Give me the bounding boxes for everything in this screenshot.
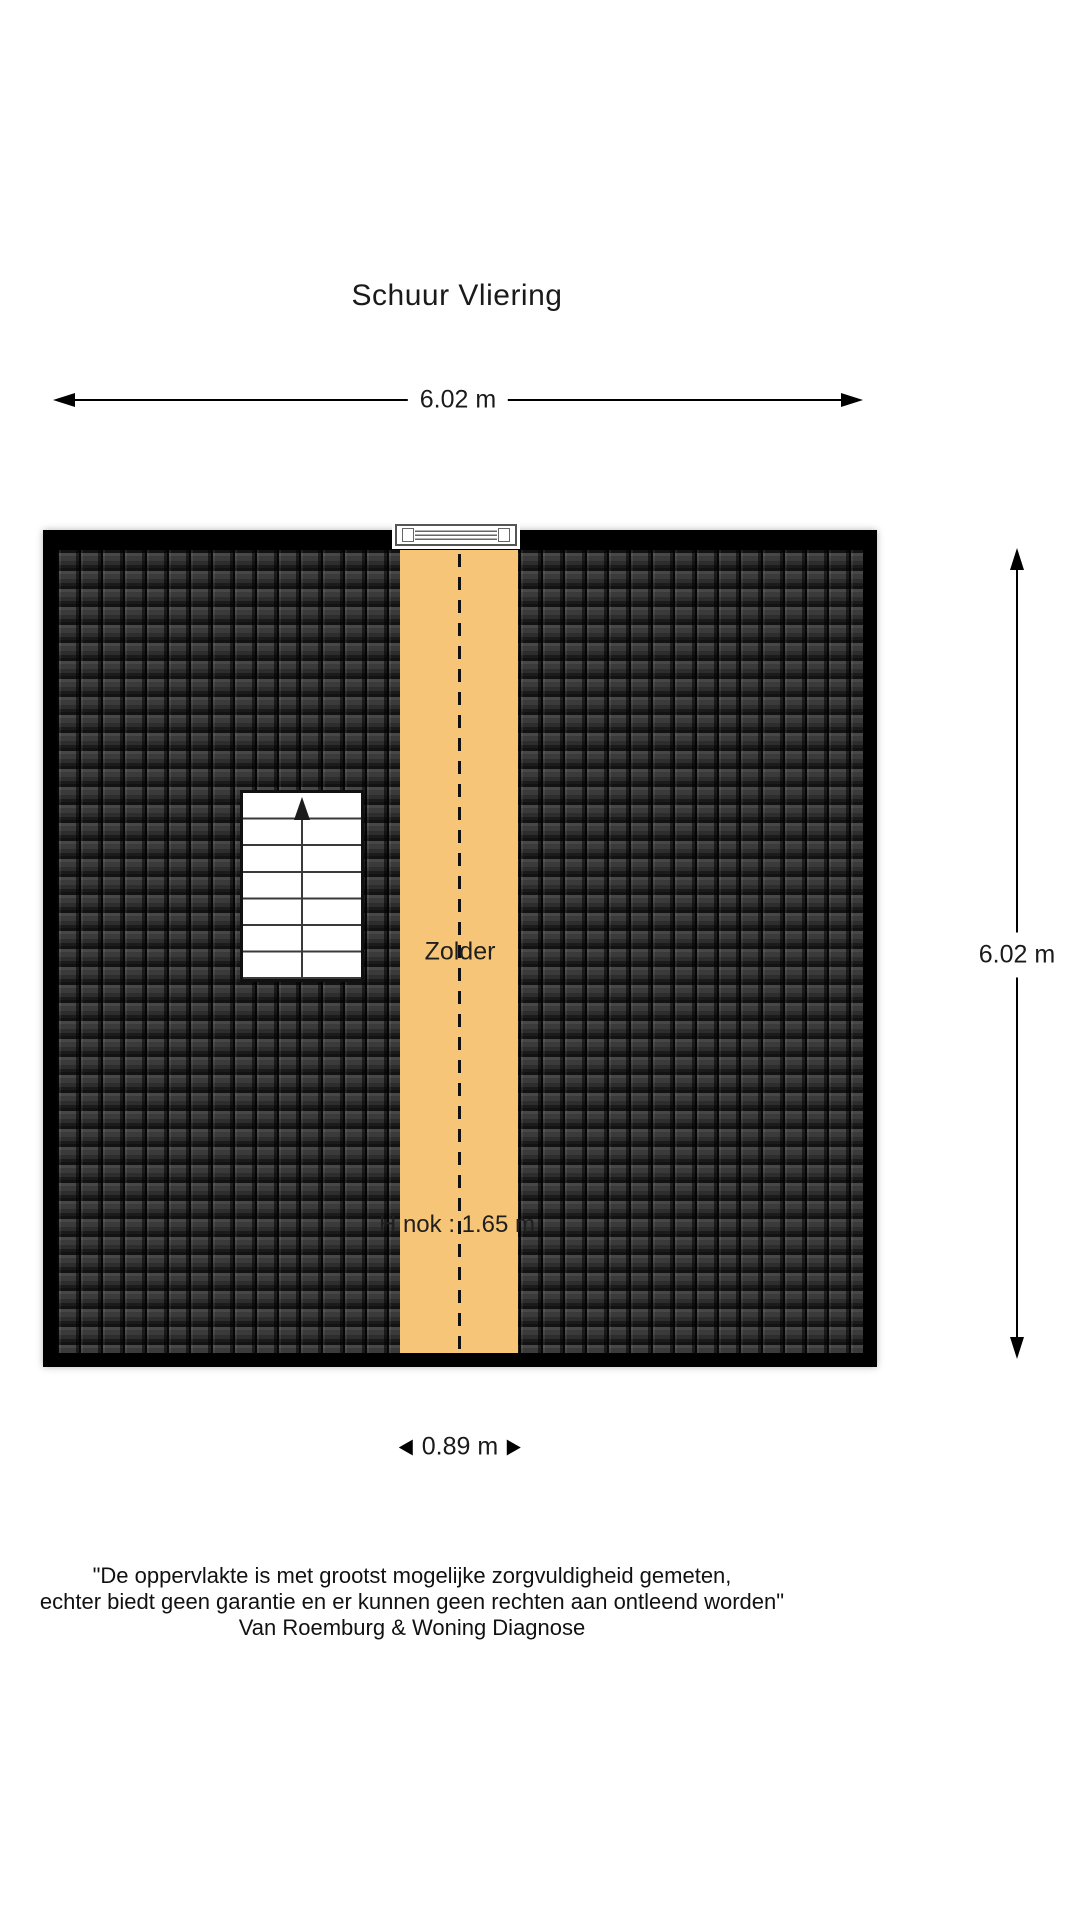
disclaimer-line-3: Van Roemburg & Woning Diagnose bbox=[40, 1615, 784, 1641]
disclaimer-line-2: echter biedt geen garantie en er kunnen … bbox=[40, 1589, 784, 1615]
stair-center-line bbox=[301, 820, 303, 979]
dimension-bottom-label: 0.89 m bbox=[422, 1433, 498, 1462]
room-label: Zolder bbox=[425, 938, 496, 967]
hatch-slats bbox=[415, 528, 497, 542]
hatch-post-right bbox=[498, 528, 510, 542]
hatch-post-left bbox=[402, 528, 414, 542]
arrow-left-icon bbox=[53, 393, 75, 407]
page-title: Schuur Vliering bbox=[352, 279, 563, 313]
dimension-top-label: 6.02 m bbox=[408, 386, 508, 415]
arrow-right-icon bbox=[841, 393, 863, 407]
ridge-height-label: H nok : 1.65 m bbox=[379, 1211, 535, 1239]
arrow-down-icon bbox=[1010, 1337, 1024, 1359]
disclaimer-line-1: "De oppervlakte is met grootst mogelijke… bbox=[40, 1563, 784, 1589]
arrow-up-icon bbox=[1010, 548, 1024, 570]
disclaimer: "De oppervlakte is met grootst mogelijke… bbox=[40, 1563, 784, 1641]
dimension-right-label: 6.02 m bbox=[977, 933, 1057, 978]
stair-direction-up-icon bbox=[294, 797, 310, 820]
roof-hatch bbox=[395, 524, 517, 546]
dimension-top: 6.02 m bbox=[53, 388, 863, 412]
dimension-right: 6.02 m bbox=[1003, 548, 1031, 1359]
staircase bbox=[240, 790, 364, 982]
dimension-bottom: 0.89 m bbox=[399, 1433, 521, 1462]
arrow-right-icon bbox=[507, 1439, 521, 1455]
arrow-left-icon bbox=[399, 1439, 413, 1455]
